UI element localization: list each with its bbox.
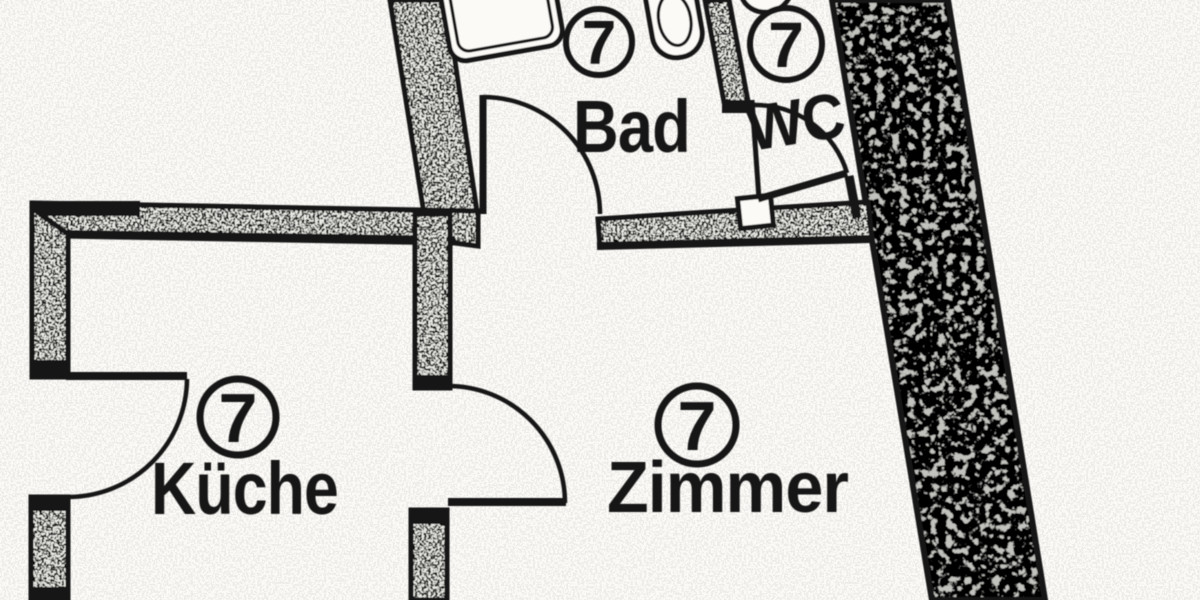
kueche-zimmer-wall-lower	[411, 510, 447, 600]
kueche-zimmer-wall-upper	[414, 214, 450, 388]
zimmer-label: Zimmer	[607, 448, 848, 528]
kueche-number: 7	[219, 379, 258, 457]
wc-number: 7	[768, 9, 804, 81]
bad-number: 7	[582, 9, 616, 78]
wc-label: WC	[742, 79, 849, 165]
zimmer-door-bottom-jamb	[411, 510, 447, 524]
west-wall-upper	[31, 208, 68, 377]
north-wall-dark-segment	[32, 201, 140, 216]
bad-label: Bad	[573, 85, 690, 168]
floor-plan-svg: 7 Bad 7 WC 7	[0, 0, 1200, 600]
scanned-floor-plan: 7 Bad 7 WC 7	[0, 0, 1200, 600]
kueche-label: Küche	[151, 447, 338, 530]
zimmer-door-top-jamb	[414, 375, 450, 388]
wall-pillar	[738, 195, 774, 228]
west-wall-lower	[31, 497, 68, 600]
entrance-door-bottom-jamb	[31, 497, 68, 511]
entrance-door-top-jamb	[31, 360, 68, 377]
west-wall-bottom-cap	[31, 587, 68, 600]
